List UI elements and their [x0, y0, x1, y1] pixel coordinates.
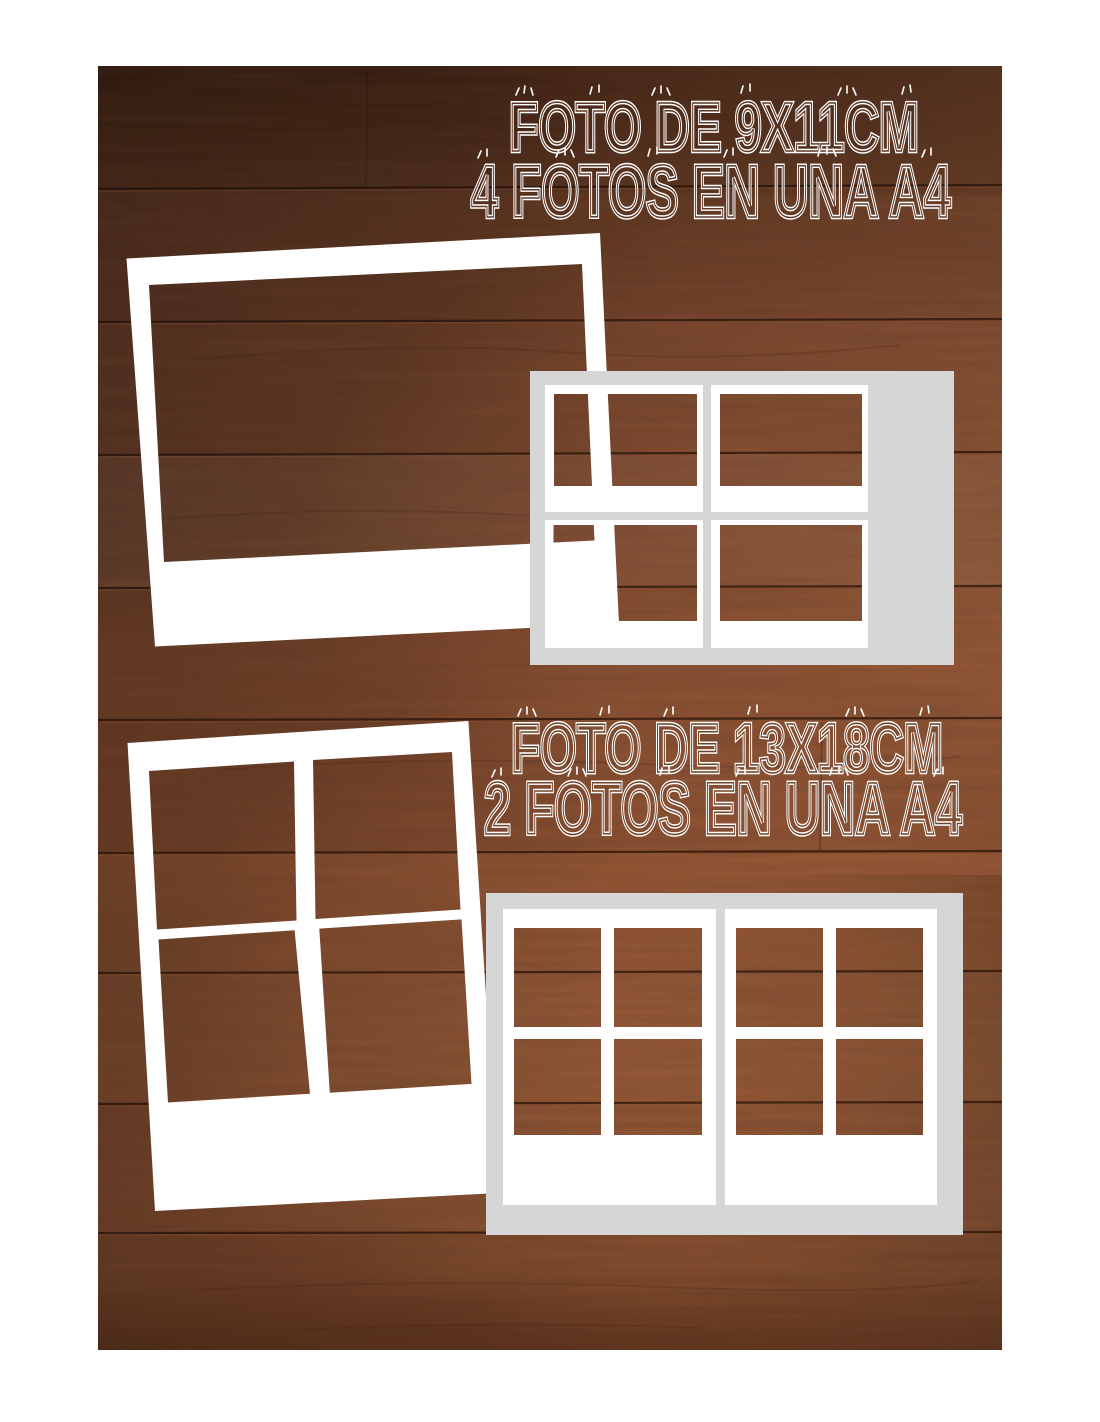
svg-text:2 FOTOS EN UNA A4: 2 FOTOS EN UNA A4 [484, 767, 962, 850]
svg-text:4 FOTOS EN UNA A4: 4 FOTOS EN UNA A4 [471, 150, 951, 233]
